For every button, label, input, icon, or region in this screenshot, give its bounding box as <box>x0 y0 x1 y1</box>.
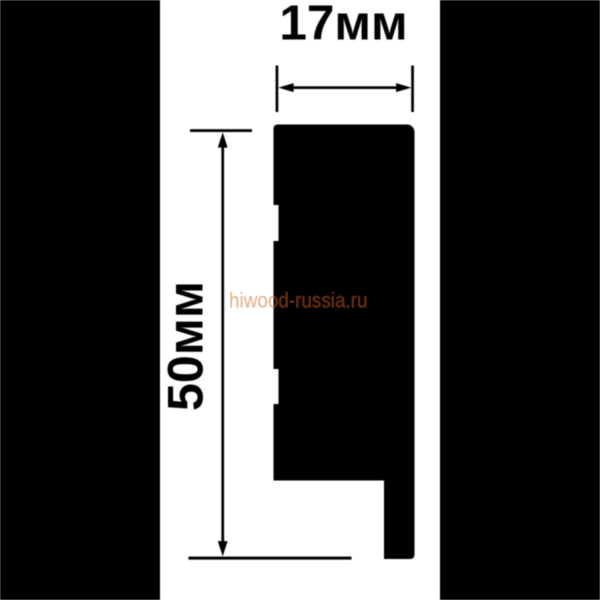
svg-text:hiwood-russia.ru: hiwood-russia.ru <box>229 290 368 313</box>
svg-text:17мм: 17мм <box>279 0 407 51</box>
svg-text:50мм: 50мм <box>158 281 214 411</box>
